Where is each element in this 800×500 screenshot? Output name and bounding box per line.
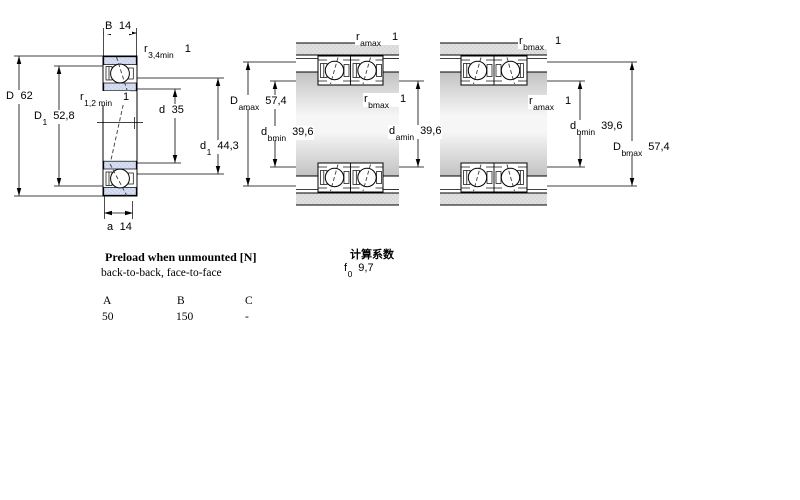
ball-bottom <box>111 169 130 188</box>
preload-value-b: 150 <box>176 310 193 324</box>
preload-col-header-c: C <box>245 294 253 308</box>
dim-label-dbmin-middle: dbmin39,6 <box>260 126 314 140</box>
ball-top <box>111 64 130 83</box>
dim-label-Dbmax: Dbmax57,4 <box>612 141 671 155</box>
calculation-factors-title: 计算系数 <box>350 249 394 262</box>
preload-col-header-a: A <box>103 294 111 308</box>
preload-value-c: - <box>245 310 249 324</box>
calculation-factor-f0: f09,7 <box>343 262 375 276</box>
dim-label-r34min: r3,4min1 <box>143 43 192 57</box>
middle-bearing-arrangement <box>243 43 424 205</box>
dim-label-width-B: B14 <box>104 20 132 34</box>
dim-label-d: d35 <box>158 104 185 118</box>
dim-label-damin: damin39,6 <box>388 125 442 139</box>
preload-subtitle: back-to-back, face-to-face <box>101 266 222 280</box>
bearing-datasheet-figure: B14 r3,4min1 D62 D152,8 r1,2 min1 d35 d1… <box>0 0 800 500</box>
dim-label-dbmin-right: dbmin39,6 <box>569 120 623 134</box>
dim-label-D: D62 <box>5 90 34 104</box>
dim-label-a: a14 <box>106 221 133 235</box>
dim-label-rbmax-right: rbmax1 <box>518 35 562 49</box>
dim-label-Damax: Damax57,4 <box>229 95 288 109</box>
preload-title: Preload when unmounted [N] <box>105 250 256 264</box>
dim-label-D1: D152,8 <box>33 110 76 124</box>
dim-label-d1: d144,3 <box>199 140 240 154</box>
dim-label-ramax-middle: ramax1 <box>355 31 399 45</box>
dim-label-ramax-right: ramax1 <box>528 95 572 109</box>
preload-col-header-b: B <box>177 294 185 308</box>
preload-value-a: 50 <box>102 310 114 324</box>
dim-label-r12min: r1,2 min1 <box>79 91 130 105</box>
dim-label-rbmax-middle: rbmax1 <box>363 93 407 107</box>
